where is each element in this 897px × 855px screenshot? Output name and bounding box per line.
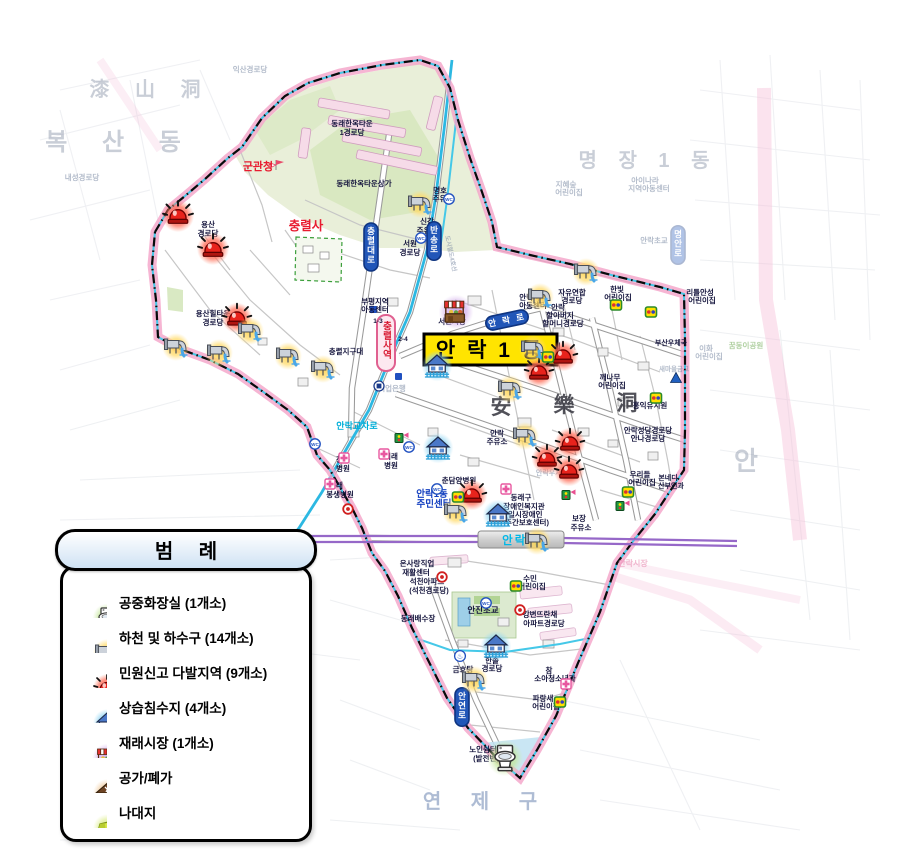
legend-item-toilet: 공중화장실 (1개소) xyxy=(75,584,301,619)
road-sign: 명안로 xyxy=(671,226,685,265)
chungnyeolsa-station-label: 충렬사역 xyxy=(381,320,392,360)
hosp-icon xyxy=(379,449,389,459)
vacant-house-icon xyxy=(75,761,107,793)
map-label: 할머니경로당 xyxy=(542,318,583,328)
drain-icon xyxy=(162,333,190,361)
flood-icon xyxy=(483,500,514,531)
map-label: 서원 xyxy=(403,238,417,248)
map-label: 연 제 구 xyxy=(423,790,549,813)
drain-icon xyxy=(523,527,551,555)
map-label: 동래한옥타운상가 xyxy=(336,178,391,188)
wc-icon xyxy=(310,439,320,449)
map-label: 온사랑직업 xyxy=(400,558,435,568)
map-label: 경로당 xyxy=(400,247,421,257)
legend-item-label: 공가/폐가 xyxy=(119,767,172,787)
map-label: 내성경로당 xyxy=(65,172,100,182)
map-label: 강변뜨란채 xyxy=(523,609,558,619)
bank-icon xyxy=(374,381,384,391)
sch-icon xyxy=(343,504,353,514)
drain-icon xyxy=(236,317,264,345)
drain-icon xyxy=(496,375,524,403)
svg-text:반송로: 반송로 xyxy=(430,225,438,254)
drain-icon xyxy=(274,342,302,370)
legend-item-label: 민원신고 다발지역 (9개소) xyxy=(119,662,267,682)
map-label: 안 xyxy=(734,446,758,476)
drain-icon xyxy=(526,283,554,311)
svg-text:충렬대로: 충렬대로 xyxy=(367,226,375,265)
drain-icon xyxy=(406,190,434,218)
map-label: 어린이집 xyxy=(688,295,716,305)
toilet-icon xyxy=(75,586,107,618)
map-label: 1경로당 xyxy=(340,127,365,137)
kid-icon xyxy=(453,492,464,502)
wc-icon xyxy=(416,233,426,243)
kid-icon xyxy=(651,393,662,403)
legend-item-label: 나대지 xyxy=(119,802,156,822)
flood-icon xyxy=(481,631,512,662)
legend-item-label: 공중화장실 (1개소) xyxy=(119,592,226,612)
road-sign: 반송로 xyxy=(427,222,441,261)
toilet-icon xyxy=(487,740,523,776)
map-label: 봉생병원 xyxy=(326,489,354,499)
hosp-icon xyxy=(561,679,571,689)
flood-icon xyxy=(422,351,453,382)
map-label: 충렬사 xyxy=(289,218,324,233)
svg-text:안연로: 안연로 xyxy=(458,691,466,720)
legend-item-label: 재래시장 (1개소) xyxy=(119,732,214,752)
siren-icon xyxy=(162,200,194,232)
map-label: 아파트경로당 xyxy=(523,618,564,628)
hosp-icon xyxy=(325,479,335,489)
map-label: 충렬지구대 xyxy=(329,346,364,356)
map-label: 안락초교 xyxy=(640,235,668,245)
map-label: 어린이집 xyxy=(598,380,626,390)
map-label: 재활센터 xyxy=(402,567,430,577)
siren-icon xyxy=(554,456,585,487)
map-label: 산부인과 xyxy=(658,481,684,490)
map-label: 군관청 xyxy=(243,159,273,173)
wc-icon xyxy=(432,484,442,494)
sch-icon xyxy=(515,605,525,615)
map-label: 명 장 1 동 xyxy=(579,149,718,172)
drain-icon xyxy=(511,422,539,450)
map-label: 안나경로당 xyxy=(631,433,666,443)
kid-icon xyxy=(555,697,566,707)
map-label: 동래구 xyxy=(511,492,532,502)
map-label: 漆 山 洞 xyxy=(89,78,210,101)
svg-text:명안로: 명안로 xyxy=(674,229,682,258)
map-label: 1-3 xyxy=(373,318,383,325)
drain-icon xyxy=(309,355,337,383)
wc-icon xyxy=(444,194,454,204)
map-label: 어린이집 xyxy=(628,477,656,487)
legend-item-label: 상습침수지 (4개소) xyxy=(119,697,226,717)
drain-icon xyxy=(75,621,107,653)
kid-icon xyxy=(511,581,522,591)
legend: 범 례 공중화장실 (1개소)하천 및 하수구 (14개소)민원신고 다발지역 … xyxy=(55,529,317,842)
chungnyeolsa-site xyxy=(295,237,342,282)
hosp-icon xyxy=(339,453,349,463)
bath-icon xyxy=(455,651,466,662)
drain-icon xyxy=(572,258,600,286)
legend-item-flood: 상습침수지 (4개소) xyxy=(75,689,301,724)
map-label: 동래한옥타운 xyxy=(331,118,372,128)
map-label: 어린이집 xyxy=(555,187,583,197)
flood-icon xyxy=(75,691,107,723)
legend-item-vacant-land: 나대지 xyxy=(75,794,301,829)
siren-icon xyxy=(197,233,229,265)
market-icon xyxy=(75,726,107,758)
legend-item-siren: 민원신고 다발지역 (9개소) xyxy=(75,654,301,689)
siren-icon xyxy=(75,656,107,688)
map-label: 안락시장 xyxy=(618,558,648,568)
map-label: 본네디 xyxy=(658,473,677,482)
map-label: 지역아동센터 xyxy=(628,183,669,193)
legend-body: 공중화장실 (1개소)하천 및 하수구 (14개소)민원신고 다발지역 (9개소… xyxy=(60,565,312,842)
drain-icon xyxy=(205,339,233,367)
vacant-land-icon xyxy=(75,796,107,828)
map-label: 익산경로당 xyxy=(233,64,268,74)
market-icon xyxy=(439,295,474,330)
drain-icon xyxy=(460,666,488,694)
kid-icon xyxy=(646,307,657,317)
map-label: 안락교차로 xyxy=(336,420,378,431)
map-label: 용산 xyxy=(201,219,215,229)
map-label: 꿈동이공원 xyxy=(729,340,764,350)
legend-title: 범 례 xyxy=(55,529,317,571)
map-label: 보장 xyxy=(572,513,586,523)
map-label: 주유소 xyxy=(487,437,508,446)
map-label: 아동센터 xyxy=(361,304,389,314)
sch-icon xyxy=(437,572,447,582)
hosp-icon xyxy=(501,484,511,494)
wc-icon xyxy=(481,598,491,608)
map-label: 병원 xyxy=(336,463,350,473)
road-sign: 안연로 xyxy=(455,688,469,727)
map-label: 동래배수장 xyxy=(401,613,436,623)
map-label: 복 산 동 xyxy=(45,129,195,156)
legend-item-drain: 하천 및 하수구 (14개소) xyxy=(75,619,301,654)
kid-icon xyxy=(543,352,554,362)
flood-icon xyxy=(423,433,454,464)
map-label: 樂 xyxy=(554,392,576,417)
map-label: 어린이집 xyxy=(518,581,546,591)
map-label: 어린이집 xyxy=(695,351,723,361)
map-label: (석천경로당) xyxy=(409,585,449,595)
road-sign: 충렬대로 xyxy=(364,223,378,271)
map-label: 병원 xyxy=(384,460,398,470)
kid-icon xyxy=(623,487,634,497)
map-label: 2-4 xyxy=(398,336,408,343)
legend-item-vacant-house: 공가/폐가 xyxy=(75,759,301,794)
legend-item-market: 재래시장 (1개소) xyxy=(75,724,301,759)
map-label: 부산우체국 xyxy=(655,338,688,347)
map-label: 경로당 xyxy=(203,317,224,327)
map-label: 새마을금고 xyxy=(659,364,689,373)
map-label: 주유소 xyxy=(571,523,592,532)
wc-icon xyxy=(404,442,414,452)
kid-icon xyxy=(611,300,622,310)
legend-item-label: 하천 및 하수구 (14개소) xyxy=(119,627,254,647)
